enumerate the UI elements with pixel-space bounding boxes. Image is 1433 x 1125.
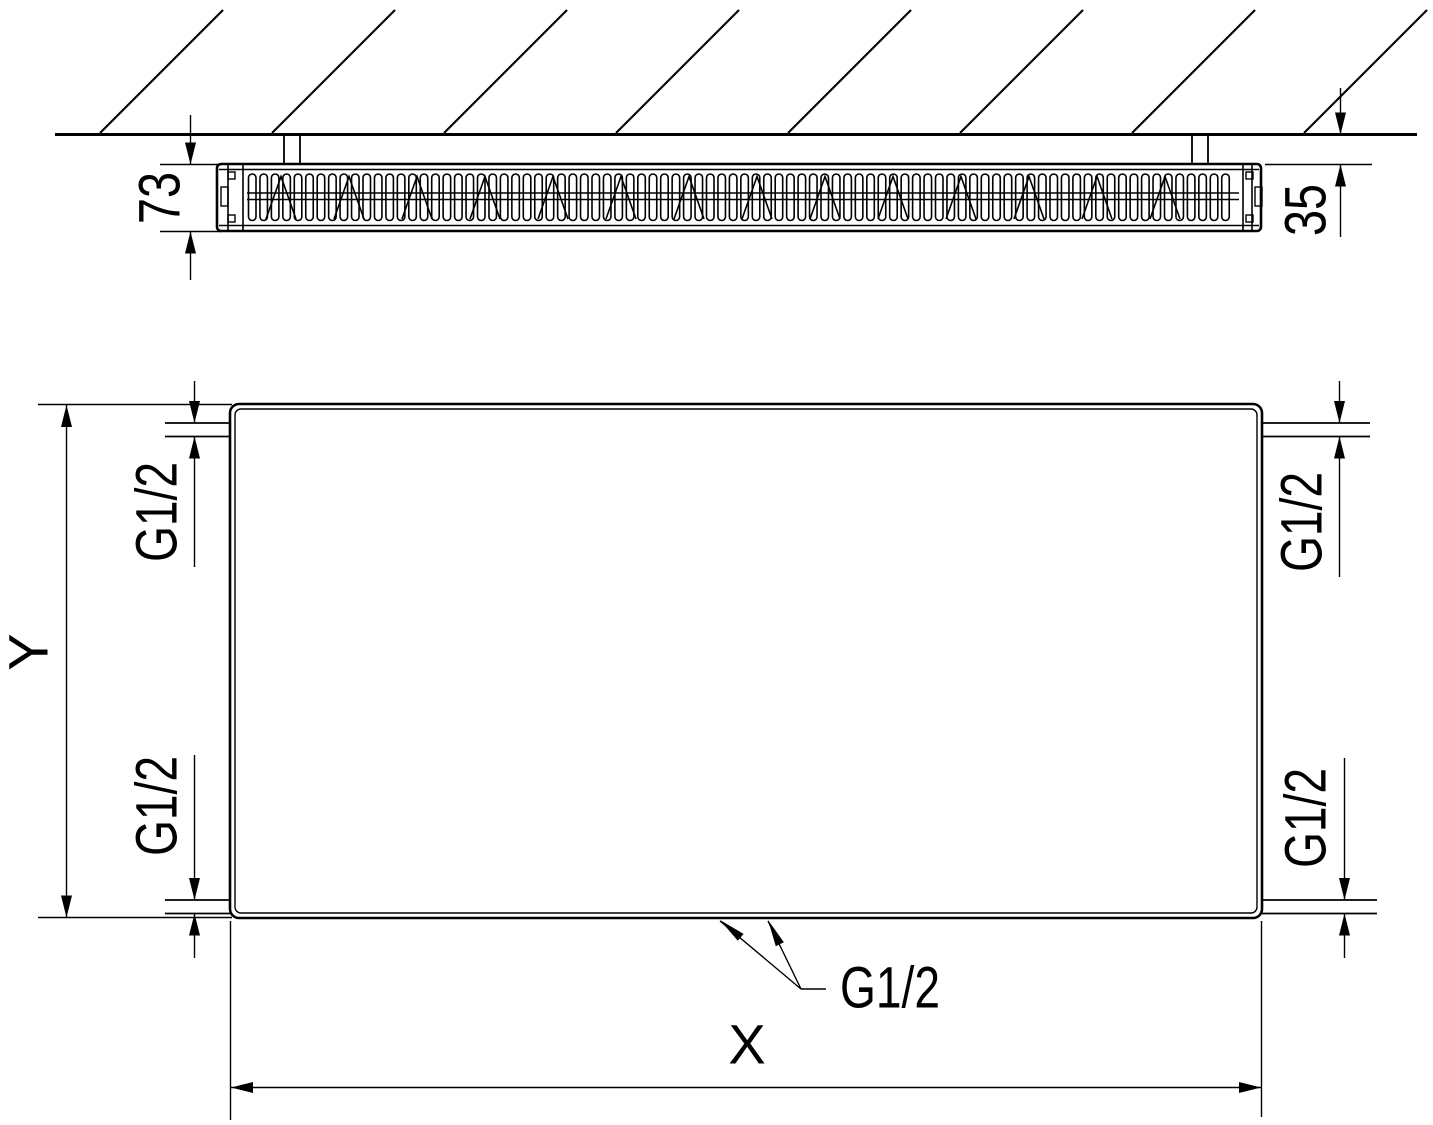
fin-loop <box>855 174 863 221</box>
wall-offset-dim-label: 35 <box>1274 184 1339 236</box>
fin-loop <box>1050 174 1058 221</box>
fin-loop <box>352 174 360 221</box>
fin-loop <box>512 174 519 221</box>
fin-loop <box>443 174 451 221</box>
dim-conn-bottom-right: G1/2 <box>1274 758 1345 958</box>
side-plug-left <box>221 187 228 206</box>
arrowhead <box>61 896 72 918</box>
arrowhead <box>189 437 200 459</box>
fin-loop <box>649 174 657 221</box>
fin-loop <box>1130 174 1138 221</box>
fin-loop <box>1187 174 1195 221</box>
fin-loop <box>1199 174 1207 221</box>
fin-corrugation <box>878 177 908 220</box>
fin-loop <box>1142 174 1150 221</box>
fin-loop <box>455 174 463 221</box>
fin-loop <box>1096 174 1104 221</box>
dim-conn-bottom-left: G1/2 <box>125 755 195 958</box>
clip-tab <box>228 215 235 222</box>
arrowhead <box>717 917 743 941</box>
fin-loop <box>1176 174 1184 221</box>
convector-fins <box>247 174 1239 221</box>
arrowhead <box>185 232 196 254</box>
fin-loop <box>707 174 715 221</box>
fin-loop <box>592 174 600 221</box>
arrowhead <box>1335 165 1346 187</box>
fin-loop <box>249 174 257 221</box>
arrowhead <box>764 918 784 946</box>
fin-corrugation <box>946 177 976 220</box>
fin-loop <box>661 174 669 221</box>
fin-loop <box>306 174 314 221</box>
hatch-line <box>960 10 1083 133</box>
fin-loop <box>546 174 554 221</box>
conn-bottom-right-label: G1/2 <box>1274 768 1339 868</box>
fin-loop <box>1119 174 1127 221</box>
stub-bottom-left <box>165 900 230 914</box>
hatch-line <box>272 10 395 133</box>
fin-loop <box>993 174 1001 221</box>
arrowhead <box>1239 1082 1261 1093</box>
fin-loop <box>260 174 268 221</box>
dim-wall-offset: 35 <box>1265 88 1372 237</box>
fin-loop <box>729 174 737 221</box>
hatch-line <box>1304 10 1427 133</box>
fin-loop <box>1084 174 1092 221</box>
dim-depth: 73 <box>128 115 223 280</box>
fin-loop <box>1061 174 1069 221</box>
fin-loop <box>1073 174 1081 221</box>
fin-corrugation <box>1014 177 1044 220</box>
arrowhead <box>1339 878 1350 900</box>
dim-width: X <box>231 921 1262 1120</box>
arrowhead <box>185 143 196 165</box>
fin-loop <box>1210 174 1218 221</box>
hatch-line <box>1132 10 1255 133</box>
panel-outline <box>230 404 1262 918</box>
fin-loop <box>294 174 302 221</box>
stub-bottom-right <box>1262 900 1377 914</box>
fin-loop <box>718 174 726 221</box>
fin-loop <box>271 174 279 221</box>
fin-loop <box>901 174 909 221</box>
fin-loop <box>810 174 818 221</box>
fin-loop <box>535 174 543 221</box>
fin-loop <box>363 174 371 221</box>
fin-loop <box>981 174 989 221</box>
fin-loop <box>924 174 932 221</box>
fin-loop <box>329 174 337 221</box>
height-dim-label: Y <box>0 633 60 670</box>
fin-loop <box>1107 174 1115 221</box>
dimension-arrowheads <box>61 113 1350 1094</box>
stub-top-right <box>1262 423 1370 437</box>
wall-bracket-right <box>1192 136 1208 165</box>
panel-inner-outline <box>235 409 1257 913</box>
fin-loop <box>638 174 646 221</box>
radiator-section <box>217 164 1262 231</box>
arrowhead <box>189 878 200 900</box>
drawing-canvas: 73 35 <box>0 0 1433 1125</box>
hatch-line <box>788 10 911 133</box>
arrowhead <box>61 405 72 427</box>
radiator-technical-drawing: 73 35 <box>0 0 1433 1125</box>
fin-loop <box>1153 174 1161 221</box>
fin-loop <box>500 174 508 221</box>
fin-loop <box>432 174 440 221</box>
fin-loop <box>775 174 783 221</box>
fin-loop <box>798 174 806 221</box>
fin-loop <box>787 174 795 221</box>
fin-loop <box>374 174 382 221</box>
fin-loop <box>867 174 875 221</box>
fin-loop <box>1165 174 1173 221</box>
conn-top-left-label: G1/2 <box>125 462 190 562</box>
fin-loop <box>523 174 531 221</box>
hatch-line <box>444 10 567 133</box>
fin-loop <box>558 174 566 221</box>
fin-loop <box>913 174 921 221</box>
fin-loop <box>569 174 577 221</box>
conn-top-right-label: G1/2 <box>1270 472 1335 572</box>
front-view: G1/2 G1/2 G1/2 G1/2 Y X <box>0 381 1377 1120</box>
fin-loop <box>626 174 634 221</box>
arrowhead <box>1339 914 1350 936</box>
conn-bottom-center-label: G1/2 <box>840 956 940 1021</box>
stub-top-left <box>165 423 230 437</box>
arrowhead <box>1334 401 1345 423</box>
fin-corrugation <box>742 177 772 220</box>
top-view: 73 35 <box>55 10 1427 280</box>
fin-corrugation <box>674 177 704 220</box>
clip-tab <box>228 172 235 179</box>
fin-loop <box>386 174 394 221</box>
dim-height: Y <box>0 405 232 918</box>
fin-loop <box>283 174 291 221</box>
fin-loop <box>936 174 944 221</box>
fin-loop <box>844 174 852 221</box>
dim-conn-top-left: G1/2 <box>125 381 195 567</box>
fin-loop <box>581 174 589 221</box>
arrowhead <box>1335 113 1346 135</box>
wall-bracket-left <box>284 136 300 165</box>
fin-loop <box>1222 174 1230 221</box>
hatch-line <box>616 10 739 133</box>
leader-conn-bottom-center: G1/2 <box>720 921 940 1021</box>
arrowhead <box>189 401 200 423</box>
wall-hatching <box>100 10 1427 133</box>
fin-loop <box>317 174 325 221</box>
fin-loop <box>1004 174 1012 221</box>
arrowhead <box>1334 437 1345 459</box>
fin-corrugation <box>810 177 840 220</box>
depth-dim-label: 73 <box>128 172 193 224</box>
width-dim-label: X <box>728 1013 765 1076</box>
fin-corrugation <box>266 177 296 220</box>
dim-conn-top-right: G1/2 <box>1270 381 1340 577</box>
conn-bottom-left-label: G1/2 <box>125 756 190 856</box>
hatch-line <box>100 10 223 133</box>
arrowhead <box>231 1082 253 1093</box>
